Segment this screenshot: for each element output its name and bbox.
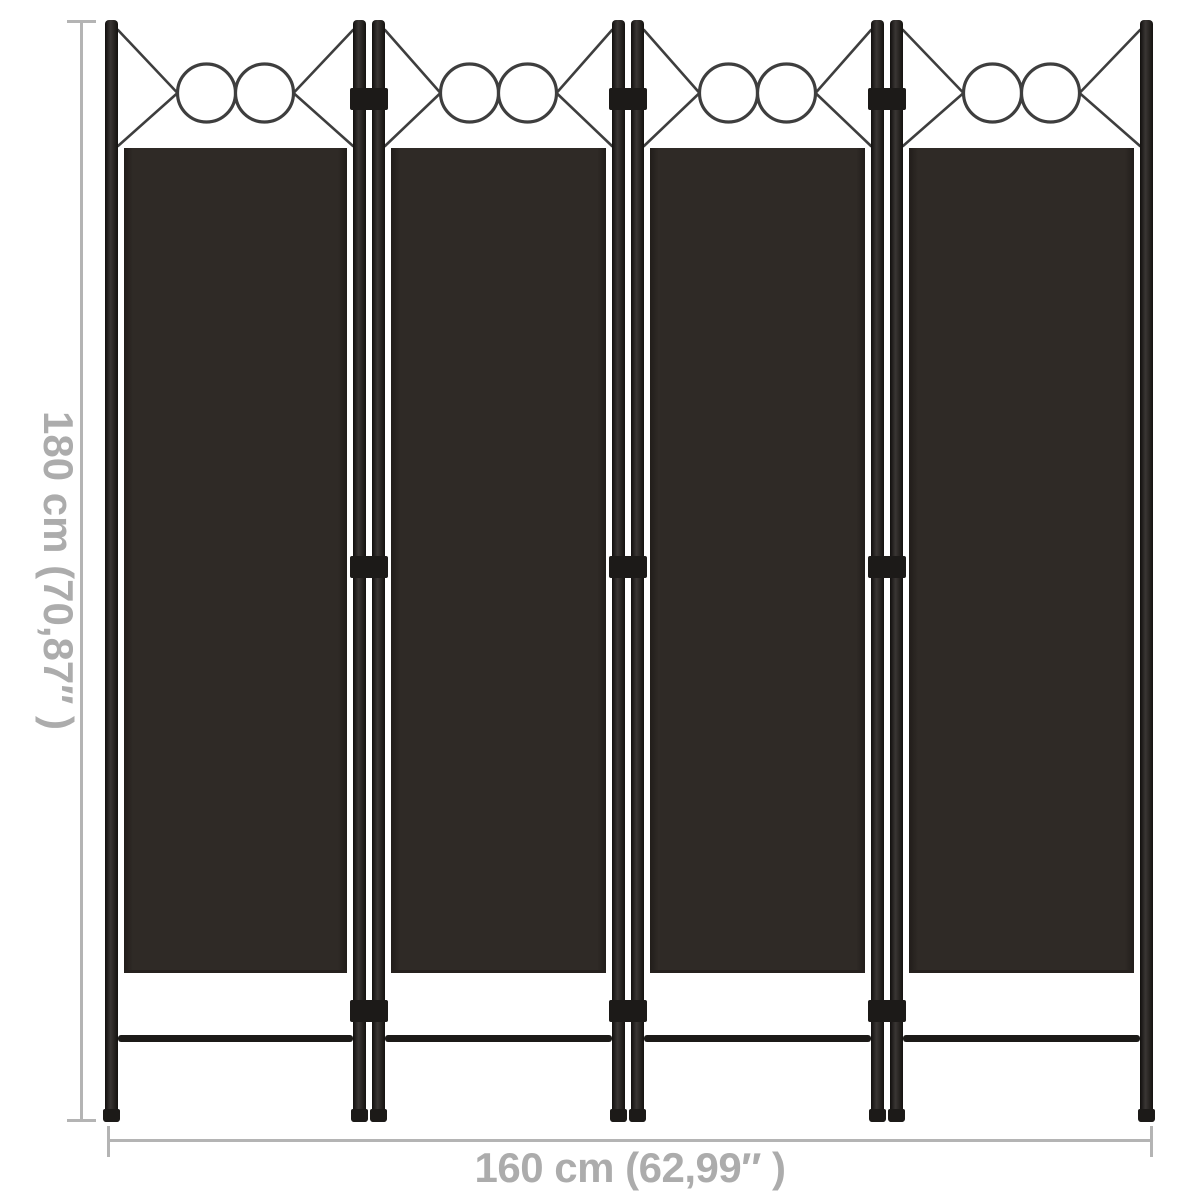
ornament-ring <box>499 64 557 122</box>
room-divider <box>0 0 1200 1200</box>
hinge-connector <box>868 88 906 110</box>
panel-top-ornament <box>644 20 871 150</box>
frame-foot <box>888 1109 905 1122</box>
frame-foot <box>351 1109 368 1122</box>
panel-fabric <box>124 148 347 973</box>
frame-foot <box>629 1109 646 1122</box>
frame-pole <box>105 20 118 1122</box>
hinge-connector <box>609 1000 647 1022</box>
panel-fabric <box>650 148 865 973</box>
ornament-ring <box>1022 64 1080 122</box>
panel-top-ornament <box>903 20 1140 150</box>
hinge-connector <box>609 88 647 110</box>
panel-bottom-crossbar <box>644 1035 871 1042</box>
frame-foot <box>1138 1109 1155 1122</box>
ornament-ring <box>964 64 1022 122</box>
product-dimension-diagram: 180 cm (70,87″ ) 160 cm (62,99″ ) <box>0 0 1200 1200</box>
frame-foot <box>610 1109 627 1122</box>
ornament-ring <box>441 64 499 122</box>
hinge-connector <box>609 556 647 578</box>
ornament-ring <box>700 64 758 122</box>
ornament-ring <box>236 64 294 122</box>
frame-foot <box>869 1109 886 1122</box>
panel-top-ornament <box>385 20 612 150</box>
frame-foot <box>103 1109 120 1122</box>
ornament-ring <box>178 64 236 122</box>
frame-foot <box>370 1109 387 1122</box>
hinge-connector <box>350 1000 388 1022</box>
hinge-connector <box>868 556 906 578</box>
panel-fabric <box>391 148 606 973</box>
panel-bottom-crossbar <box>118 1035 353 1042</box>
frame-pole <box>1140 20 1153 1122</box>
panel-bottom-crossbar <box>903 1035 1140 1042</box>
hinge-connector <box>868 1000 906 1022</box>
panel-top-ornament <box>118 20 353 150</box>
hinge-connector <box>350 556 388 578</box>
panel-bottom-crossbar <box>385 1035 612 1042</box>
panel-fabric <box>909 148 1134 973</box>
hinge-connector <box>350 88 388 110</box>
ornament-ring <box>758 64 816 122</box>
